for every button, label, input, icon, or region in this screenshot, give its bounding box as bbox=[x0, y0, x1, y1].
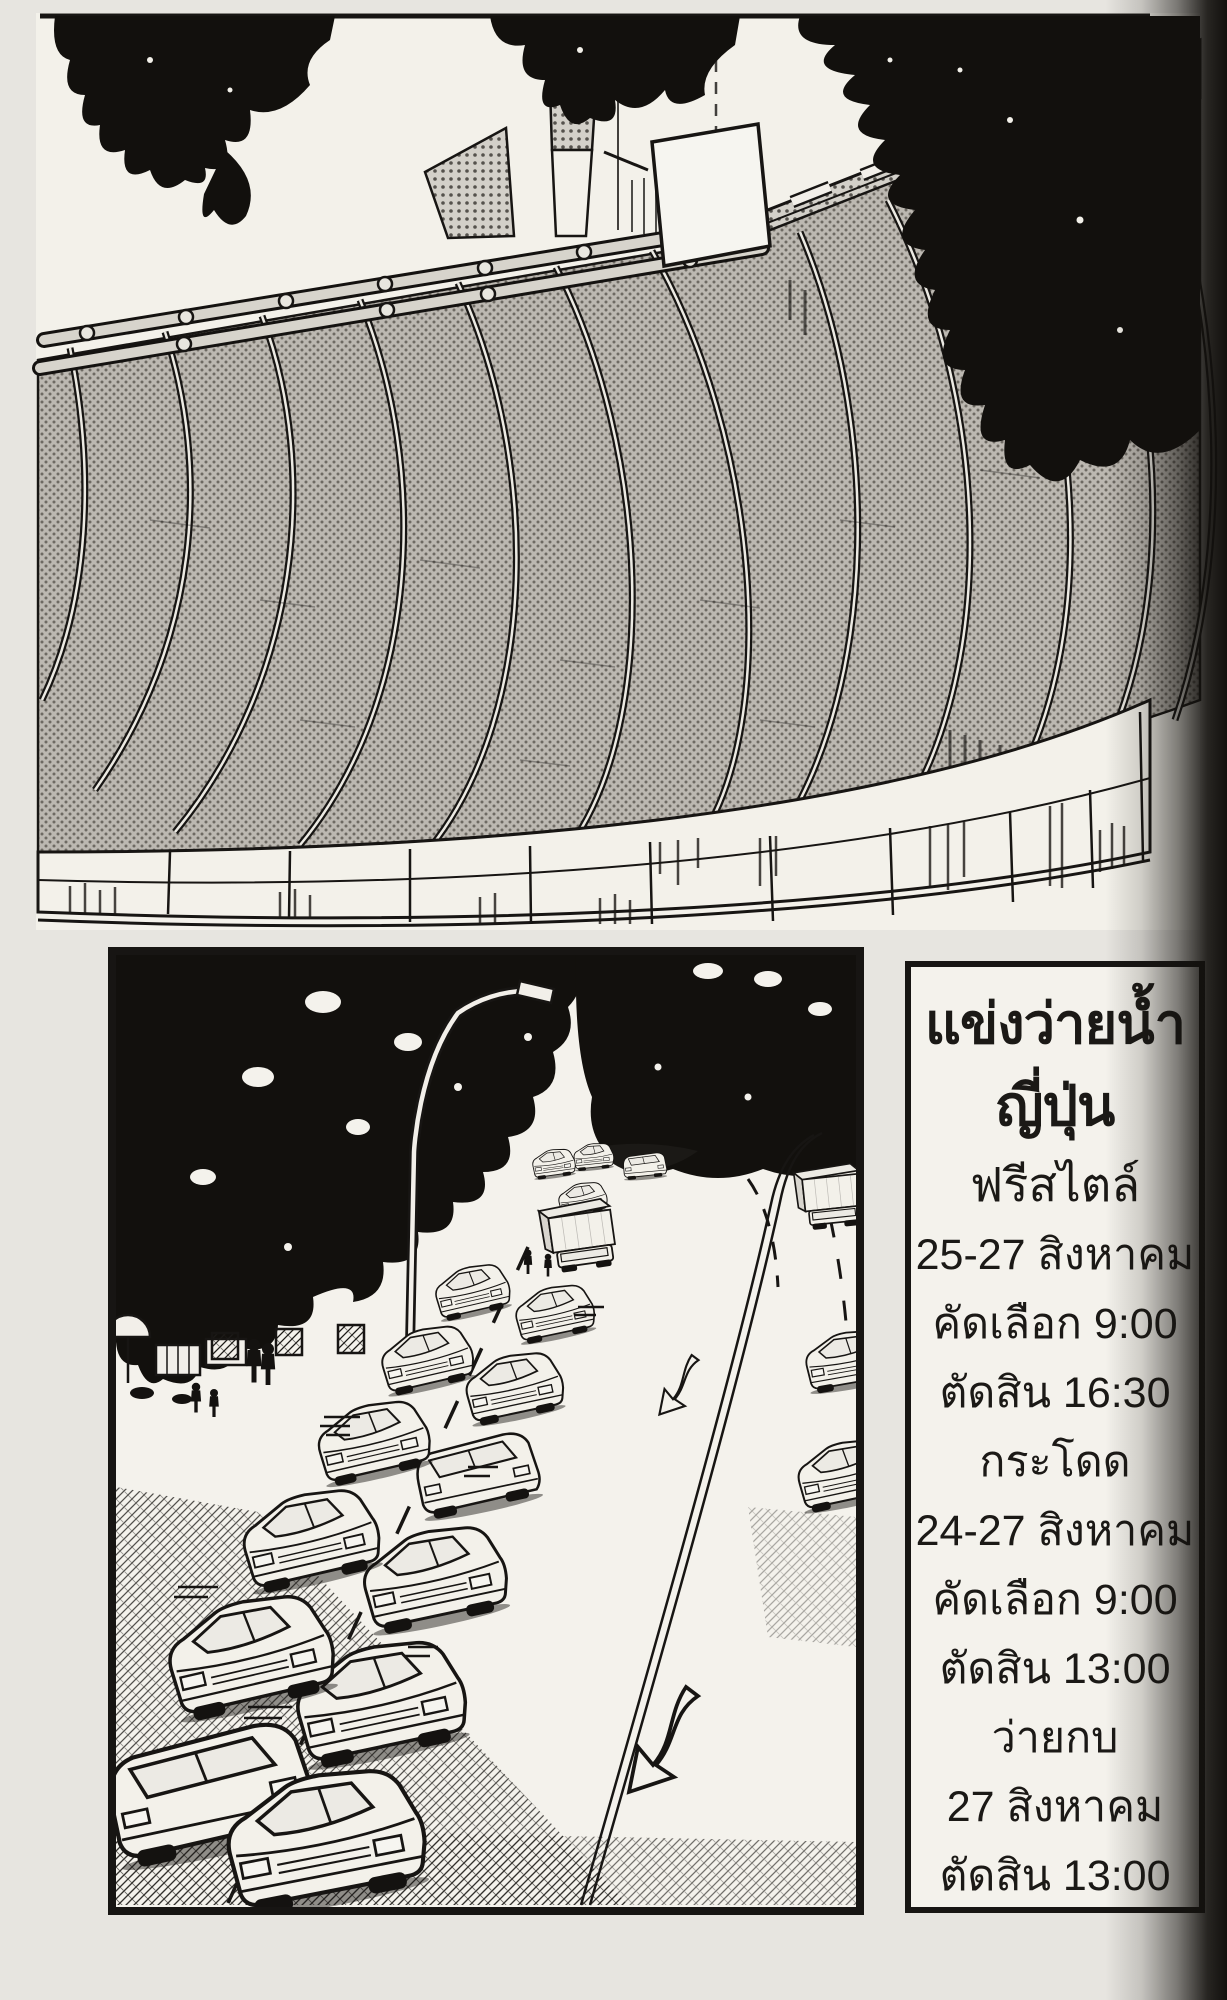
event-3-name: ว่ายกบ bbox=[911, 1704, 1199, 1773]
event-1-dates: 25-27 สิงหาคม bbox=[911, 1221, 1199, 1290]
event-3-dates: 27 สิงหาคม bbox=[911, 1773, 1199, 1842]
vehicle-van bbox=[622, 1152, 667, 1181]
stadium-panel-illustration bbox=[0, 0, 1227, 947]
event-3-final: ตัดสิน 13:00 bbox=[911, 1842, 1199, 1911]
event-2-final: ตัดสิน 13:00 bbox=[911, 1635, 1199, 1704]
event-2-dates: 24-27 สิงหาคม bbox=[911, 1497, 1199, 1566]
event-2-heats: คัดเลือก 9:00 bbox=[911, 1566, 1199, 1635]
street-panel-illustration bbox=[108, 947, 864, 1915]
manga-page: แข่งว่ายน้ำ ญี่ปุ่น ฟรีสไตล์ 25-27 สิงหา… bbox=[0, 0, 1227, 2000]
event-2-name: กระโดด bbox=[911, 1428, 1199, 1497]
event-1-name: ฟรีสไตล์ bbox=[911, 1147, 1199, 1221]
schedule-title-2: ญี่ปุ่น bbox=[911, 1065, 1199, 1147]
schedule-panel: แข่งว่ายน้ำ ญี่ปุ่น ฟรีสไตล์ 25-27 สิงหา… bbox=[905, 961, 1205, 1913]
event-1-heats: คัดเลือก 9:00 bbox=[911, 1290, 1199, 1359]
schedule-title: แข่งว่ายน้ำ bbox=[911, 983, 1199, 1065]
event-1-final: ตัดสิน 16:30 bbox=[911, 1359, 1199, 1428]
